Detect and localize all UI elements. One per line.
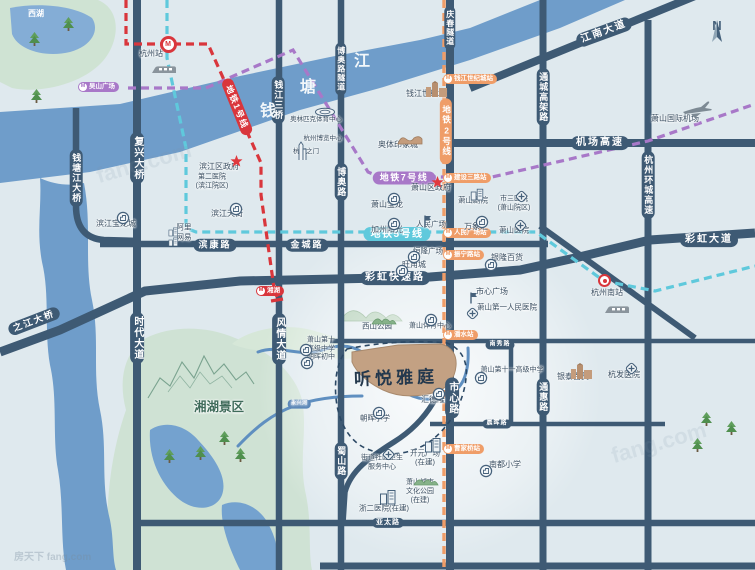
property-name-label: 听悦雅庭: [354, 362, 439, 390]
metro-line-label: 地铁2号线: [440, 98, 452, 164]
road-label: 江南大道: [574, 16, 633, 49]
station-name: 湘湖: [267, 288, 280, 295]
road-label: 金城路: [285, 239, 328, 252]
road-label: 杭州环城高速: [642, 151, 655, 219]
metro-station-badge: M振宁路站: [443, 250, 484, 260]
station-name: 钱江世纪城站: [454, 76, 493, 83]
metro-station-badge: M吴山广场: [78, 82, 119, 92]
station-name: 建设三路站: [454, 175, 487, 182]
map-label-layer: 钱塘江大桥复兴大桥时代大道钱江三桥风情大道博奥路隧道博奥路蜀山路庆春隧道市心路通…: [0, 0, 755, 570]
metro-station-badge: M湘湖: [256, 286, 284, 296]
poi-label: 湘湖景区: [194, 400, 244, 416]
poi-label: 萧山第一人民医院: [477, 302, 537, 311]
road-label: 庆春隧道: [444, 6, 455, 50]
poi-label: 南都小学: [489, 460, 521, 470]
poi-label: 江: [354, 52, 370, 72]
poi-label: 塘: [300, 78, 316, 98]
road-label: 时代大道: [130, 312, 144, 364]
metro-station-badge: M潘水站: [443, 330, 478, 340]
road-label: 风情大道: [272, 313, 286, 365]
watermark: 房天下 fang.com: [14, 548, 91, 563]
station-name: 振宁路站: [454, 252, 480, 259]
road-label: 博奥路隧道: [335, 43, 346, 96]
road-label: 机场高速: [571, 136, 629, 150]
station-name: 潘水站: [454, 332, 474, 339]
road-label: 彩虹大道: [680, 233, 738, 247]
station-name: 曹家桥站: [454, 446, 480, 453]
metro-logo-icon: M: [444, 445, 452, 453]
poi-label: 杭州站: [139, 49, 163, 59]
metro-line-label: 地铁1号线: [220, 77, 254, 137]
metro-station-badge: M钱江世纪城站: [443, 74, 497, 84]
metro-station-badge: M曹家桥站: [443, 444, 484, 454]
watermark: fang.com: [608, 417, 709, 469]
poi-label: 杭州博览中心: [304, 135, 343, 143]
poi-label: 奥林匹克体育中心: [290, 116, 342, 124]
road-label: 之江大桥: [7, 305, 62, 336]
road-label: 南秀路: [485, 340, 514, 349]
road-label: 蜀山路: [335, 442, 348, 480]
compass-arrow-icon: [704, 18, 730, 48]
poi-label: 西湖: [28, 9, 44, 19]
road-label: 亚太路: [372, 518, 404, 528]
metro-logo-icon: M: [444, 251, 452, 259]
poi-label: 第二医院(滨江院区): [196, 173, 229, 191]
metro-logo-icon: M: [444, 331, 452, 339]
poi-label: 钱: [260, 102, 276, 122]
road-label: 通惠路: [537, 378, 550, 416]
road-label: 滨康路: [193, 239, 236, 252]
map-canvas: 钱塘江大桥复兴大桥时代大道钱江三桥风情大道博奥路隧道博奥路蜀山路庆春隧道市心路通…: [0, 0, 755, 570]
metro-logo-icon: M: [444, 174, 452, 182]
poi-label: 永兴河: [288, 400, 311, 409]
station-name: 吴山广场: [89, 84, 115, 91]
road-label: 博奥路: [335, 163, 348, 201]
poi-label: 杭州南站: [591, 288, 623, 298]
metro-station-badge: M建设三路站: [443, 173, 491, 183]
road-label: 钱塘江大桥: [70, 149, 83, 207]
poi-label: 市心广场: [476, 287, 508, 297]
metro-logo-icon: M: [257, 287, 265, 295]
metro-logo-icon: M: [79, 83, 87, 91]
compass: N: [704, 18, 730, 33]
railway-station-marker: [598, 274, 611, 287]
road-label: 通城高架路: [537, 68, 550, 126]
road-label: 市心路: [445, 378, 459, 419]
metro-logo-icon: M: [444, 229, 452, 237]
road-label: 晨晖路: [482, 419, 511, 428]
poi-label: 萧山第十一高级中学: [481, 367, 544, 376]
